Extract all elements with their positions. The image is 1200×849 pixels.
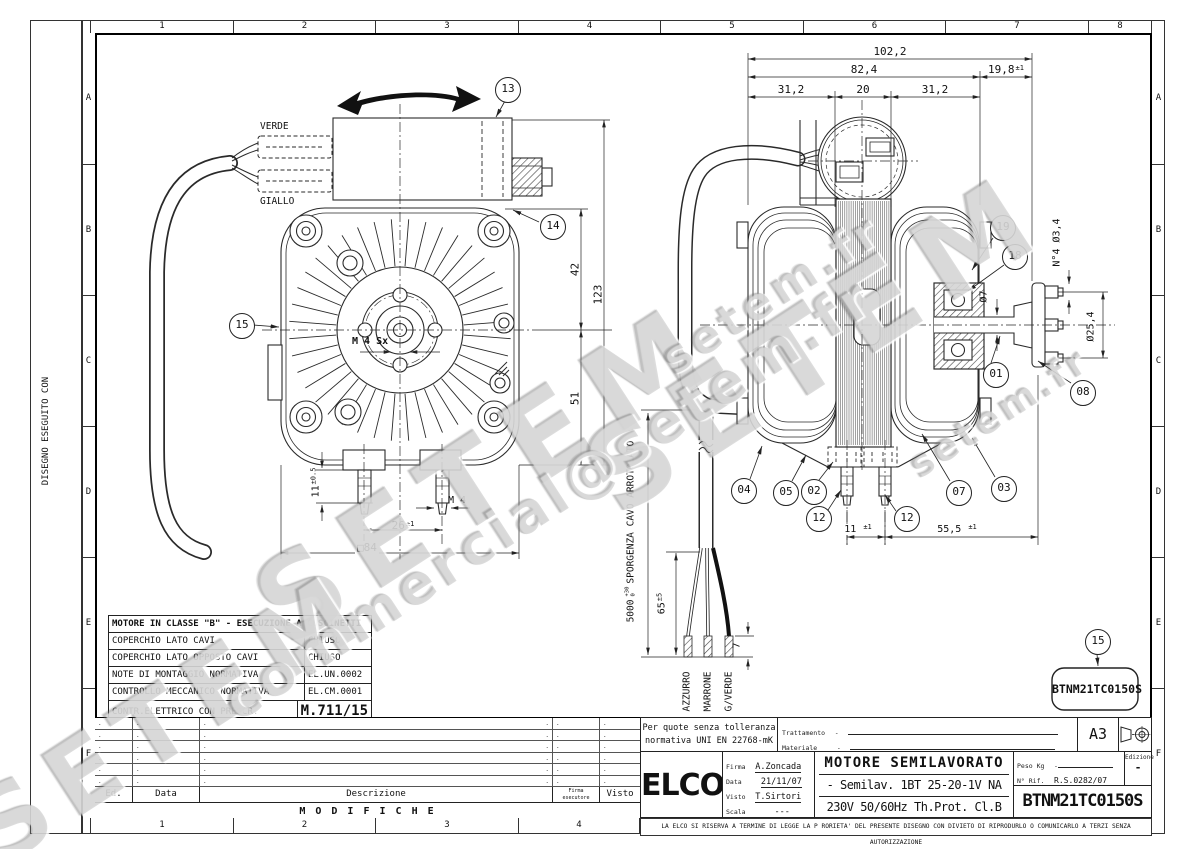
- thread-label-m4sx: M 4 Sx: [352, 336, 388, 347]
- dim-84: □84: [355, 541, 379, 554]
- dim-n4-dia34: N°4 Ø3,4: [1052, 198, 1063, 288]
- dim-55-5-value: 55,5: [937, 524, 961, 535]
- mod-empty-cell: .: [95, 764, 133, 775]
- dim-11-tol: ±0.5: [310, 468, 318, 485]
- callout-04: 04: [731, 478, 757, 504]
- spec-value: CHIUSO: [305, 633, 371, 649]
- dim-19-8: 19,8±1: [966, 63, 1046, 76]
- dim-11-1-tol: ±1: [863, 523, 871, 531]
- callout-15-front: 15: [229, 313, 255, 339]
- callout-02: 02: [801, 479, 827, 505]
- dim-123: 123: [592, 265, 605, 325]
- wire-label-azzurro: AZZURRO: [682, 657, 693, 727]
- dim-42: 42: [569, 240, 582, 300]
- spec-value: EL.UN.0002: [305, 667, 371, 683]
- mod-header-descrizione: Descrizione: [200, 787, 553, 802]
- mod-empty-cell: .: [95, 718, 133, 729]
- mod-empty-cell: .: [600, 730, 640, 741]
- elco-logo-text: ELCO: [641, 768, 724, 803]
- mod-empty-cell: .: [553, 730, 600, 741]
- mod-empty-cell: ..: [200, 730, 553, 741]
- dim-dia7: Ø7: [979, 267, 990, 327]
- wire-label-marrone: MARRONE: [703, 657, 714, 727]
- mod-header-firma-1: Firma: [553, 788, 599, 795]
- dim-26-tol: ±1: [406, 520, 414, 528]
- cavo-note: SPORGENZA CAVO ARROTOLATO: [626, 441, 637, 584]
- dim-102-2: 102,2: [860, 45, 920, 58]
- dim-55-5: 55,5 ±1: [917, 524, 997, 535]
- front-view: [157, 86, 552, 560]
- mod-empty-cell: .: [95, 753, 133, 764]
- dim-5000-cavo: 5000+300SPORGENZA CAVO ARROTOLATO: [626, 417, 637, 647]
- dim-65-tol: ±5: [656, 593, 664, 601]
- mod-empty-cell: .: [553, 741, 600, 752]
- front-capacitor-box: [333, 118, 512, 200]
- mod-empty-cell: .: [553, 718, 600, 729]
- callout-12-left: 12: [806, 506, 832, 532]
- mod-empty-cell: .: [133, 718, 200, 729]
- mod-empty-cell: .: [600, 776, 640, 787]
- mod-empty-cell: .: [133, 741, 200, 752]
- mod-empty-cell: .: [553, 776, 600, 787]
- mod-table-header: Ed. Data Descrizione Firmaesecutore Vist…: [95, 787, 640, 803]
- side-studs: [841, 467, 891, 505]
- callout-05: 05: [773, 480, 799, 506]
- mod-empty-cell: .: [133, 730, 200, 741]
- dim-m4: M 4: [448, 495, 466, 506]
- dim-31-2-right: 31,2: [905, 83, 965, 96]
- treatment-material-cell: Trattamento - Materiale -: [777, 717, 1078, 752]
- wire-label-gverde: G/VERDE: [724, 657, 735, 727]
- mod-header-ed: Ed.: [95, 787, 133, 802]
- dim-11-1: 11 ±1: [832, 524, 884, 535]
- drawing-sheet: DISEGNO ESEGUITO CON 1 2 3 4 5 6 7 8 1 2…: [0, 0, 1200, 849]
- mod-empty-cell: .: [95, 730, 133, 741]
- spec-table: MOTORE IN CLASSE "B" - ESECUZIONE A CUSC…: [108, 615, 372, 725]
- scala-value: ---: [774, 807, 789, 818]
- modifications-table: .................................... Ed.…: [95, 717, 640, 818]
- wire-label-giallo: GIALLO: [260, 196, 294, 207]
- disclaimer-strip: LA ELCO SI RISERVA A TERMINE DI LEGGE LA…: [640, 818, 1152, 836]
- projection-symbol-icon: [1119, 718, 1151, 751]
- dim-26: 26±1: [373, 519, 433, 532]
- spec-table-title: MOTORE IN CLASSE "B" - ESECUZIONE A CUSC…: [109, 616, 371, 633]
- title-line-1: MOTORE SEMILAVORATO: [819, 752, 1009, 775]
- scala-label: Scala: [726, 808, 746, 816]
- title-line-3: 230V 50/60Hz Th.Prot. Cl.B: [815, 797, 1013, 818]
- mod-empty-cell: .: [95, 741, 133, 752]
- tolerance-note-line1: Per quote senza tolleranza: [641, 722, 777, 735]
- code-cell: BTNM21TC0150S: [1013, 785, 1152, 818]
- mod-header-firma-2: esecutore: [553, 795, 599, 802]
- spec-row: CONTROLLO MECCANICO NORMATIVA EL.CM.0001: [109, 684, 371, 701]
- dim-5000-tol-dn: 0: [631, 587, 637, 597]
- dim-11-05: 11±0.5: [311, 453, 322, 513]
- signature-cell: Firma A.Zoncada Data 21/11/07 Visto T.Si…: [722, 751, 815, 818]
- rotation-arrow: [337, 86, 481, 115]
- edizione-label: Edizione: [1125, 754, 1151, 761]
- dim-65-value: 65: [657, 602, 668, 614]
- mod-table-empty-row: ......: [95, 718, 640, 730]
- callout-15-side: 15: [1085, 629, 1111, 655]
- spec-value: CHIUSO: [305, 650, 371, 666]
- mod-empty-cell: .: [600, 718, 640, 729]
- spec-label: NOTE DI MONTAGGIO NORMATIVA: [109, 667, 305, 683]
- mod-header-firma: Firmaesecutore: [553, 787, 600, 802]
- spec-label: COPERCHIO LATO CAVI: [109, 633, 305, 649]
- part-code-label: BTNM21TC0150S: [1052, 668, 1138, 710]
- spec-row: NOTE DI MONTAGGIO NORMATIVA EL.UN.0002: [109, 667, 371, 684]
- mod-empty-cell: .: [553, 753, 600, 764]
- callout-03: 03: [991, 476, 1017, 502]
- dim-19-8-value: 19,8: [988, 63, 1015, 76]
- mod-empty-cell: .: [600, 753, 640, 764]
- dim-82-4: 82,4: [834, 63, 894, 76]
- mod-table-empty-row: ......: [95, 764, 640, 776]
- mod-empty-cell: .: [553, 764, 600, 775]
- spec-label: COPERCHIO LATO OPPOSTO CAVI: [109, 650, 305, 666]
- mod-empty-cell: ..: [200, 764, 553, 775]
- tolerance-note-cell: Per quote senza tolleranza normativa UNI…: [640, 717, 778, 752]
- dim-19-8-tol: ±1: [1016, 64, 1024, 72]
- peso-line: [1058, 759, 1113, 768]
- mod-table-empty-row: ......: [95, 776, 640, 788]
- callout-12-right: 12: [894, 506, 920, 532]
- dim-11-1-value: 11: [844, 524, 856, 535]
- mod-empty-cell: .: [133, 753, 200, 764]
- mod-empty-cell: ..: [200, 718, 553, 729]
- mod-header-data: Data: [133, 787, 200, 802]
- mod-header-visto: Visto: [600, 787, 640, 802]
- mod-empty-cell: ..: [200, 741, 553, 752]
- front-side-tab: [268, 345, 282, 400]
- mod-table-title: M O D I F I C H E: [95, 803, 640, 820]
- rif-label: N° Rif.: [1017, 777, 1044, 785]
- dim-51: 51: [569, 369, 582, 429]
- spec-row: COPERCHIO LATO CAVI CHIUSO: [109, 633, 371, 650]
- mod-empty-cell: .: [600, 741, 640, 752]
- terminal-blocks: [828, 447, 897, 467]
- edizione-cell: Edizione -: [1124, 751, 1152, 786]
- wire-label-verde: VERDE: [260, 121, 289, 132]
- drawing-code: BTNM21TC0150S: [1022, 791, 1142, 811]
- mod-empty-rows: ....................................: [95, 718, 640, 787]
- dim-5000-value: 5000: [626, 600, 637, 623]
- wire-gverde: [713, 548, 729, 636]
- callout-01: 01: [983, 362, 1009, 388]
- elco-logo: ELCO®: [641, 752, 722, 816]
- mod-empty-cell: ..: [200, 776, 553, 787]
- tolerance-note-line2: normativa UNI EN 22768-mK: [641, 735, 777, 748]
- margin-note: DISEGNO ESEGUITO CON: [41, 346, 51, 516]
- logo-cell: ELCO®: [640, 751, 723, 818]
- mod-empty-cell: .: [133, 764, 200, 775]
- edizione-value: -: [1125, 761, 1151, 774]
- front-bolt: [512, 158, 542, 196]
- callout-18: 18: [1002, 244, 1028, 270]
- mod-table-empty-row: ......: [95, 741, 640, 753]
- spec-row: COPERCHIO LATO OPPOSTO CAVI CHIUSO: [109, 650, 371, 667]
- mod-empty-cell: ..: [200, 753, 553, 764]
- callout-19: 19: [990, 215, 1016, 241]
- drawing-title-cell: MOTORE SEMILAVORATO - Semilav. 1BT 25-20…: [814, 751, 1014, 818]
- mod-table-empty-row: ......: [95, 753, 640, 765]
- dim-dia25-4: Ø25,4: [1086, 292, 1097, 362]
- dim-65: 65±5: [657, 574, 668, 634]
- mod-empty-cell: .: [600, 764, 640, 775]
- dim-26-value: 26: [392, 519, 405, 532]
- dim-31-2-left: 31,2: [761, 83, 821, 96]
- dim-20: 20: [833, 83, 893, 96]
- mod-empty-cell: .: [95, 776, 133, 787]
- front-terminals: [258, 136, 332, 192]
- callout-13: 13: [495, 77, 521, 103]
- projection-symbol-cell: [1118, 717, 1152, 752]
- callout-07: 07: [946, 480, 972, 506]
- trattamento-line: [848, 725, 1058, 735]
- mod-table-empty-row: ......: [95, 730, 640, 742]
- format-cell: A3: [1077, 717, 1119, 752]
- dim-55-5-tol: ±1: [968, 523, 976, 531]
- title-line-2: - Semilav. 1BT 25-20-1V NA: [819, 775, 1009, 797]
- spec-value: EL.CM.0001: [305, 684, 371, 700]
- side-view: [684, 100, 1115, 657]
- peso-rif-cell: Peso Kg - N° Rif. R.S.0282/07: [1013, 751, 1125, 786]
- callout-14: 14: [540, 214, 566, 240]
- spec-label: CONTROLLO MECCANICO NORMATIVA: [109, 684, 305, 700]
- dim-11-value: 11: [311, 485, 322, 497]
- mod-empty-cell: .: [133, 776, 200, 787]
- format-a3: A3: [1089, 725, 1107, 743]
- materiale-line: [850, 740, 1055, 750]
- callout-08: 08: [1070, 380, 1096, 406]
